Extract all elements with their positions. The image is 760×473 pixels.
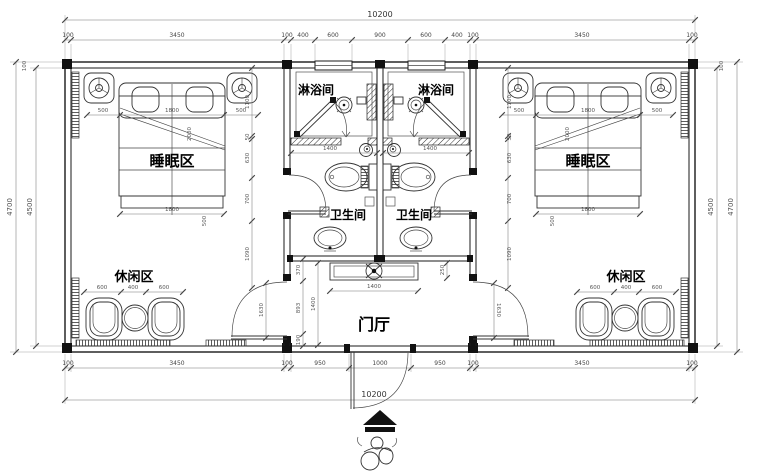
shower-door-left bbox=[294, 97, 350, 137]
radiator-left-top bbox=[72, 72, 79, 138]
dim-chain-4: 1090 bbox=[245, 247, 251, 261]
dim-top-0: 100 bbox=[62, 32, 74, 39]
dim-right-inner: 4500 bbox=[707, 198, 715, 216]
round-table-inner bbox=[125, 308, 146, 329]
dim-hall-190: 190 bbox=[296, 334, 302, 345]
dim-top-3: 400 bbox=[297, 32, 309, 39]
door-height-dim-left: 1630 bbox=[259, 283, 266, 338]
label-leisure-right: 休闲区 bbox=[605, 269, 645, 285]
dim-bed-foot-500: 500 bbox=[550, 215, 556, 226]
dim-top-8: 100 bbox=[467, 32, 479, 39]
dim-top-6: 600 bbox=[420, 32, 432, 39]
ceiling-fan-icon bbox=[366, 263, 382, 279]
dim-bottom-total: 10200 bbox=[361, 390, 386, 399]
label-wc-right: 卫生间 bbox=[396, 207, 432, 222]
dim-bot-5: 950 bbox=[434, 360, 446, 367]
dim-right-outer: 4700 bbox=[727, 198, 735, 216]
dim-hall-1400: 1400 bbox=[311, 297, 317, 311]
label-shower-left: 淋浴间 bbox=[298, 82, 334, 97]
label-leisure-left: 休闲区 bbox=[113, 269, 153, 285]
dim-chain-2: 630 bbox=[245, 152, 251, 163]
dim-chain-3: 700 bbox=[245, 193, 251, 204]
wash-basin bbox=[400, 227, 432, 251]
dim-bed-diag: 2000 bbox=[565, 127, 571, 141]
door-height-dim-right: 1630 bbox=[494, 283, 501, 338]
tub-chair bbox=[638, 298, 674, 340]
dim-bot-1: 3450 bbox=[169, 360, 184, 367]
dim-hall-893: 893 bbox=[296, 302, 302, 313]
dim-seat-400: 400 bbox=[128, 285, 139, 291]
dimensions-bottom: 100 3450 100 950 1000 950 100 3450 100 1… bbox=[62, 354, 698, 404]
dim-top-1: 3450 bbox=[169, 32, 184, 39]
dim-left-inner: 4500 bbox=[26, 198, 34, 216]
dim-bot-3: 950 bbox=[314, 360, 326, 367]
dim-seat-600: 600 bbox=[159, 285, 170, 291]
dim-seat-400: 400 bbox=[621, 285, 632, 291]
dim-bed-500: 500 bbox=[514, 108, 525, 114]
round-table bbox=[122, 305, 148, 331]
dim-door-1630: 1630 bbox=[259, 303, 265, 317]
dim-bot-7: 3450 bbox=[574, 360, 589, 367]
dim-left-outer: 4700 bbox=[6, 198, 14, 216]
radiator-left-bottom bbox=[72, 278, 79, 338]
toilet bbox=[383, 163, 435, 191]
label-hall: 门厅 bbox=[358, 315, 390, 334]
dim-chain-3: 700 bbox=[507, 193, 513, 204]
dim-bot-4: 1000 bbox=[372, 360, 387, 367]
dim-right-wall: 100 bbox=[719, 60, 725, 71]
label-shower-right: 淋浴间 bbox=[418, 82, 454, 97]
radiator-bottom-right-b bbox=[514, 340, 554, 346]
window-left bbox=[315, 61, 352, 70]
dim-chain-0: 1100 bbox=[507, 95, 513, 109]
dim-bot-0: 100 bbox=[62, 360, 74, 367]
outer-walls bbox=[62, 59, 698, 353]
nightstand-lamp bbox=[84, 73, 114, 103]
dim-top-7: 400 bbox=[451, 32, 463, 39]
left-bedroom: 睡眠区 500 1800 500 1800 500 2000 1100 50 6… bbox=[84, 68, 287, 340]
dim-bed-foot-500: 500 bbox=[202, 215, 208, 226]
floor-plan-page: 10200 100 3450 100 400 600 900 600 400 1… bbox=[0, 0, 760, 473]
paper-holder bbox=[360, 144, 373, 157]
chain-dims-left: 1100 50 630 700 1090 bbox=[245, 68, 252, 288]
shower-door-right bbox=[410, 97, 466, 137]
dim-door-1630: 1630 bbox=[495, 303, 501, 317]
chain-dims-right: 1100 50 630 700 1090 bbox=[507, 68, 513, 288]
dim-chain-1: 50 bbox=[245, 133, 251, 140]
shower-rooms: 淋浴间 淋浴间 bbox=[294, 72, 466, 137]
floor-drain bbox=[336, 97, 352, 113]
shower-valve bbox=[394, 97, 403, 104]
console-cabinet bbox=[330, 263, 418, 280]
dim-top-9: 3450 bbox=[574, 32, 589, 39]
dim-seat-600: 600 bbox=[590, 285, 601, 291]
tub-chair bbox=[148, 298, 184, 340]
round-table-inner bbox=[615, 308, 636, 329]
dim-left-wall: 100 bbox=[22, 60, 28, 71]
dim-bed-diag: 2000 bbox=[187, 127, 193, 141]
dimensions-right: 4500 4700 100 bbox=[689, 60, 743, 352]
dimensions-top: 10200 100 3450 100 400 600 900 600 400 1… bbox=[62, 10, 698, 60]
dim-wc-1400: 1400 bbox=[323, 146, 337, 152]
tub-chair bbox=[576, 298, 612, 340]
dim-seat-600: 600 bbox=[652, 285, 663, 291]
dim-seat-600: 600 bbox=[97, 285, 108, 291]
dim-chain-0: 1100 bbox=[245, 95, 251, 109]
radiator-bottom-left-a bbox=[76, 340, 170, 346]
dim-cabinet-1400: 1400 bbox=[367, 284, 381, 290]
toilet bbox=[325, 163, 377, 191]
window-right bbox=[408, 61, 445, 70]
dim-chain-4: 1090 bbox=[507, 247, 513, 261]
nightstand-lamp bbox=[646, 73, 676, 103]
dim-bed-500: 500 bbox=[652, 108, 663, 114]
dim-chain-1: 50 bbox=[507, 133, 513, 140]
nightstand-lamp bbox=[227, 73, 257, 103]
right-bedroom: 睡眠区 500 1800 500 1800 500 2000 1100 50 6… bbox=[473, 68, 676, 340]
wc-rooms: 1400 1400 卫生间 bbox=[288, 144, 472, 252]
dim-top-5: 900 bbox=[374, 32, 386, 39]
dim-bot-6: 100 bbox=[467, 360, 479, 367]
dim-bed-500: 500 bbox=[98, 108, 109, 114]
radiator-right-top bbox=[681, 72, 688, 138]
dim-wc-1400: 1400 bbox=[423, 146, 437, 152]
round-table bbox=[612, 305, 638, 331]
dim-bot-2: 100 bbox=[281, 360, 293, 367]
seating-dims-left: 600 400 600 bbox=[84, 285, 183, 292]
wall-pier-right bbox=[384, 84, 393, 120]
dim-bed-1800: 1800 bbox=[581, 108, 595, 114]
label-sleep-left: 睡眠区 bbox=[149, 152, 194, 170]
dim-top-total: 10200 bbox=[367, 10, 392, 19]
dim-chain-2: 630 bbox=[507, 152, 513, 163]
floor-drain bbox=[408, 97, 424, 113]
tub-chair bbox=[86, 298, 122, 340]
radiator-right-bottom bbox=[681, 278, 688, 338]
dim-top-4: 600 bbox=[327, 32, 339, 39]
double-bed bbox=[535, 83, 641, 215]
wash-basin bbox=[314, 227, 346, 251]
seating-dims-right: 600 400 600 bbox=[577, 285, 676, 292]
dim-bed-foot-1800: 1800 bbox=[165, 207, 179, 213]
dim-top-2: 100 bbox=[281, 32, 293, 39]
entry-hall: 1400 250 370 893 190 1400 门厅 bbox=[296, 259, 447, 346]
radiator-bottom-left-b bbox=[206, 340, 246, 346]
entrance-arrow-icon bbox=[363, 410, 397, 432]
double-bed bbox=[119, 83, 225, 215]
paper-holder bbox=[388, 144, 401, 157]
label-sleep-right: 睡眠区 bbox=[565, 152, 610, 170]
radiator-bottom-right-a bbox=[590, 340, 684, 346]
floor-plan-canvas: 10200 100 3450 100 400 600 900 600 400 1… bbox=[0, 0, 760, 473]
dim-bot-8: 100 bbox=[686, 360, 698, 367]
person-figure bbox=[358, 437, 397, 470]
dim-bed-foot-1800: 1800 bbox=[581, 207, 595, 213]
dimensions-left: 4700 4500 100 bbox=[6, 60, 71, 352]
shower-valve bbox=[357, 97, 366, 104]
wall-pier-left bbox=[367, 84, 376, 120]
label-wc-left: 卫生间 bbox=[330, 207, 366, 222]
dim-cabinet-370: 370 bbox=[296, 264, 302, 275]
dim-cabinet-250: 250 bbox=[440, 264, 446, 275]
dim-top-10: 100 bbox=[686, 32, 698, 39]
dim-bed-1800: 1800 bbox=[165, 108, 179, 114]
